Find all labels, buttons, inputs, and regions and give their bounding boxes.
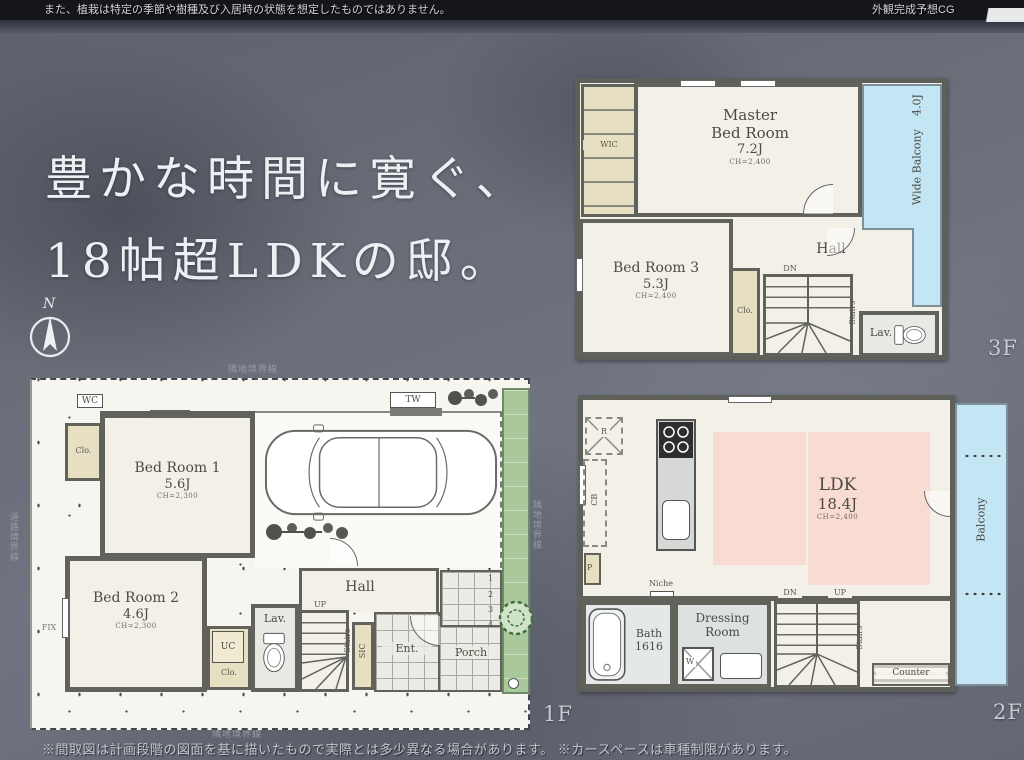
- 1f-closet-top-label: Clo.: [66, 446, 101, 456]
- 2f-bath-name: Bath: [626, 627, 672, 640]
- 2f-w-label: W: [684, 657, 696, 667]
- top-bar-band: [0, 20, 1024, 33]
- floor-plan-2f: LDK 18.4J CH=2,400 R CB P Niche: [578, 395, 1010, 700]
- 2f-up-label: UP: [828, 588, 852, 598]
- 2f-cb-label: CB: [590, 487, 600, 513]
- 1f-uc-clo-label: Clo.: [208, 668, 250, 678]
- 1f-bedroom1-size: 5.6J: [110, 477, 245, 493]
- 3f-wide-balcony-label: Wide Balcony 4.0J: [905, 90, 924, 210]
- 2f-vanity: [720, 653, 762, 679]
- boundary-label-top: 隣地境界線: [228, 362, 278, 375]
- 1f-floor-label: 1F: [543, 702, 573, 726]
- 1f-fix-label: FIX: [34, 623, 64, 633]
- 1f-garden-drain: [508, 678, 519, 689]
- 3f-master-name2: Bed Room: [675, 124, 825, 142]
- compass-icon: [26, 310, 74, 360]
- 3f-wide-balcony-lower: [912, 228, 942, 307]
- floor-plan-1f: TW WC Bed Room 1 5.6J CH=2,300 Clo. Bed …: [30, 378, 530, 730]
- footer-disclaimer: ※間取図は計画段階の図面を基に描いたもので実際とは多少異なる場合があります。 ※…: [42, 739, 797, 758]
- 2f-ldk-ch: CH=2,400: [790, 513, 885, 521]
- 1f-wc-box: WC: [77, 394, 103, 408]
- 2f-bath-size: 1616: [626, 640, 672, 653]
- 1f-porch-label: Porch: [444, 646, 498, 659]
- photo-sliver: [962, 8, 1024, 22]
- 3f-wide-balcony-name: Wide Balcony: [910, 129, 923, 205]
- 1f-uc-box: UC: [212, 631, 244, 663]
- 3f-bedroom3-label: Bed Room 3 5.3J CH=2,400: [587, 260, 725, 301]
- 1f-tw-box: TW: [390, 392, 436, 408]
- 1f-plants-top-icon: [445, 384, 501, 412]
- 1f-car-icon: [262, 420, 500, 525]
- floor-plan-3f: WIC Master Bed Room 7.2J CH=2,400 Wide B…: [575, 78, 947, 360]
- 1f-step-3: 3: [488, 605, 493, 615]
- boundary-label-right: 隣地境界線: [531, 500, 544, 550]
- 1f-bedroom2-ch: CH=2,300: [72, 622, 200, 630]
- 1f-ent-label: Ent.: [382, 642, 432, 655]
- 2f-sink: [662, 500, 690, 540]
- 1f-bedroom1-ch: CH=2,300: [110, 492, 245, 500]
- 3f-closet-label: Clo.: [730, 306, 760, 316]
- 3f-wic-room: [581, 84, 637, 217]
- 1f-hall-label: Hall: [330, 576, 390, 596]
- 1f-hall-text: Hall: [345, 579, 375, 595]
- 3f-toilet-icon: [893, 322, 927, 348]
- floor-plan-poster: また、植栽は特定の季節や樹種及び入居時の状態を想定したものではありません。 外観…: [0, 0, 1024, 760]
- 2f-dressing-name1: Dressing: [680, 611, 765, 625]
- 2f-p-label: P: [587, 563, 592, 573]
- 1f-up-label: UP: [308, 600, 332, 610]
- 1f-garden-strip: [502, 388, 530, 694]
- 1f-tree-icon: [496, 598, 536, 638]
- 1f-stairs: [299, 610, 349, 692]
- 2f-bathtub-icon: [588, 608, 626, 681]
- 1f-step-2: 2: [488, 590, 493, 600]
- 3f-dn-label: DN: [778, 264, 802, 274]
- 1f-bedroom2-name: Bed Room 2: [72, 590, 200, 607]
- 3f-stairs-label: Stairs: [848, 293, 858, 333]
- 1f-bedroom2-label: Bed Room 2 4.6J CH=2,300: [72, 590, 200, 631]
- top-disclaimer-text: また、植栽は特定の季節や樹種及び入居時の状態を想定したものではありません。: [44, 0, 451, 20]
- 3f-bedroom3-name: Bed Room 3: [587, 260, 725, 277]
- 2f-bath-label: Bath 1616: [626, 627, 672, 653]
- 3f-master-label: Master Bed Room 7.2J CH=2,400: [675, 106, 825, 166]
- 3f-bedroom3-ch: CH=2,400: [587, 292, 725, 300]
- 2f-ldk-window-top: [728, 396, 772, 403]
- 2f-ldk-name: LDK: [790, 475, 885, 495]
- 3f-wide-balcony-size: 4.0J: [910, 94, 923, 116]
- 3f-master-window-1: [680, 80, 716, 87]
- 2f-stairs-label: Stairs: [855, 618, 865, 658]
- 2f-stove-icon: [659, 422, 693, 458]
- compass: N: [22, 296, 76, 362]
- 1f-bedroom1-label: Bed Room 1 5.6J CH=2,300: [110, 460, 245, 501]
- 3f-stairs: [763, 274, 853, 356]
- 3f-wic-label: WIC: [583, 140, 635, 150]
- 3f-bedroom3-window: [576, 258, 583, 292]
- 1f-toilet-icon: [260, 630, 288, 676]
- cg-caption-text: 外観完成予想CG: [872, 0, 955, 20]
- 2f-counter-label: Counter: [876, 668, 946, 679]
- 1f-bedroom1-name: Bed Room 1: [110, 460, 245, 477]
- 3f-floor-label: 3F: [988, 336, 1018, 360]
- 3f-wide-balcony: [862, 84, 942, 230]
- 1f-top-wall: [100, 411, 255, 416]
- 1f-stairs-winder-lines: [302, 613, 346, 689]
- 2f-dressing-name2: Room: [680, 625, 765, 639]
- 2f-ldk-label: LDK 18.4J CH=2,400: [790, 475, 885, 522]
- 3f-master-window-2: [740, 80, 776, 87]
- 2f-floor-label: 2F: [993, 700, 1023, 724]
- 2f-balcony-label: Balcony: [974, 485, 987, 555]
- 2f-dn-label: DN: [778, 588, 802, 598]
- 2f-stairs-winder-lines: [777, 604, 857, 685]
- 2f-ldk-size: 18.4J: [790, 495, 885, 513]
- 2f-balcony-vents-top: [963, 453, 1001, 459]
- 2f-r-label: R: [598, 427, 610, 437]
- 2f-stairs: [774, 601, 860, 688]
- 2f-niche-label: Niche: [642, 579, 680, 589]
- 3f-master-ch: CH=2,400: [675, 158, 825, 166]
- 1f-sic-label: SIC: [358, 631, 368, 671]
- 1f-tw-ledge: [390, 408, 442, 416]
- 3f-bedroom3-size: 5.3J: [587, 277, 725, 293]
- 1f-lav-label: Lav.: [254, 612, 296, 625]
- 2f-dressing-label: Dressing Room: [680, 611, 765, 640]
- headline-line1: 豊かな時間に寛ぐ、: [45, 140, 530, 209]
- 2f-balcony-vents-bottom: [963, 591, 1001, 597]
- 1f-step-1: 1: [488, 574, 493, 584]
- headline-line2: 18帖超LDKの邸。: [45, 222, 514, 291]
- 1f-step-4: 4: [488, 620, 493, 630]
- boundary-label-left: 道路境界線: [8, 512, 21, 562]
- 1f-bedroom2-size: 4.6J: [72, 607, 200, 623]
- 3f-master-size: 7.2J: [675, 142, 825, 158]
- 3f-stairs-winder-lines: [766, 277, 850, 353]
- 3f-master-name1: Master: [675, 106, 825, 124]
